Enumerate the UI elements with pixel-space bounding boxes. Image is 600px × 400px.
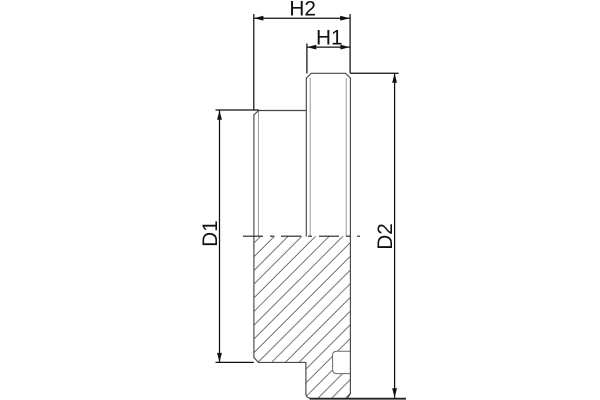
svg-text:D2: D2 <box>374 223 397 250</box>
svg-text:H1: H1 <box>316 27 343 50</box>
svg-text:D1: D1 <box>199 220 222 247</box>
svg-text:H2: H2 <box>289 0 316 21</box>
